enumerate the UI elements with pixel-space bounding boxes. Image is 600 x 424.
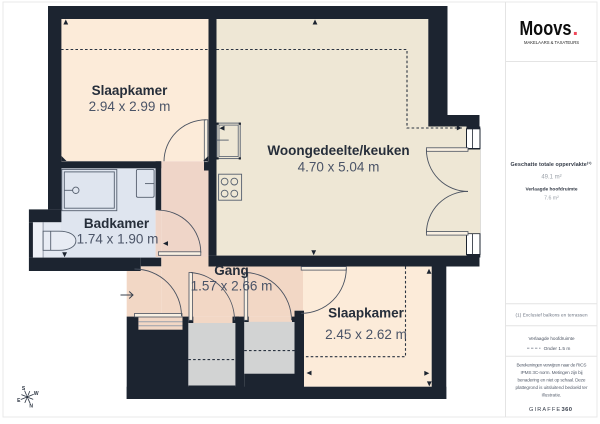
svg-text:Slaapkamer: Slaapkamer (328, 306, 405, 321)
svg-text:2.94 x 2.99 m: 2.94 x 2.99 m (89, 99, 171, 114)
svg-text:Woongedeelte/keuken: Woongedeelte/keuken (267, 143, 409, 158)
svg-text:2.45 x 2.62 m: 2.45 x 2.62 m (325, 327, 407, 342)
svg-text:Geschatte totale oppervlakte⁽¹: Geschatte totale oppervlakte⁽¹⁾ (511, 162, 593, 168)
svg-text:Onder 1.5 m: Onder 1.5 m (544, 346, 571, 352)
svg-text:7.6 m²: 7.6 m² (544, 196, 559, 202)
svg-text:Verlaagde hoofdruimte: Verlaagde hoofdruimte (526, 187, 578, 193)
svg-text:360: 360 (562, 407, 573, 413)
svg-text:MAKELAARS & TAXATEURS: MAKELAARS & TAXATEURS (524, 40, 579, 45)
svg-text:(1) Exclusief balkons en terra: (1) Exclusief balkons en terrassen (516, 313, 588, 318)
svg-text:IPMS 3C-norm. Metingen zijn bi: IPMS 3C-norm. Metingen zijn bij (521, 370, 583, 375)
svg-text:Slaapkamer: Slaapkamer (92, 83, 169, 98)
svg-text:Badkamer: Badkamer (84, 216, 150, 231)
svg-text:Gang: Gang (214, 263, 249, 278)
svg-text:N: N (29, 404, 33, 410)
svg-text:benadering en niet op schaal.: benadering en niet op schaal. Deze (518, 378, 586, 383)
svg-text:W: W (34, 391, 39, 397)
svg-text:Moovs: Moovs (520, 17, 572, 40)
svg-text:1.74 x 1.90 m: 1.74 x 1.90 m (77, 232, 159, 247)
svg-text:GIRAFFE: GIRAFFE (529, 407, 561, 413)
svg-text:.: . (573, 17, 579, 40)
svg-text:1.57 x 2.66 m: 1.57 x 2.66 m (191, 279, 273, 294)
svg-text:illustratie.: illustratie. (542, 393, 562, 398)
svg-text:Verlaagde hoofdruimte: Verlaagde hoofdruimte (529, 336, 575, 341)
svg-text:Berekeningen verwijzen naar de: Berekeningen verwijzen naar de RICS (517, 363, 587, 368)
svg-text:4.70 x 5.04 m: 4.70 x 5.04 m (298, 160, 380, 175)
svg-text:plattegrond is uitsluitend bed: plattegrond is uitsluitend bedoeld ter (516, 385, 588, 390)
svg-text:49.1 m²: 49.1 m² (541, 175, 561, 181)
